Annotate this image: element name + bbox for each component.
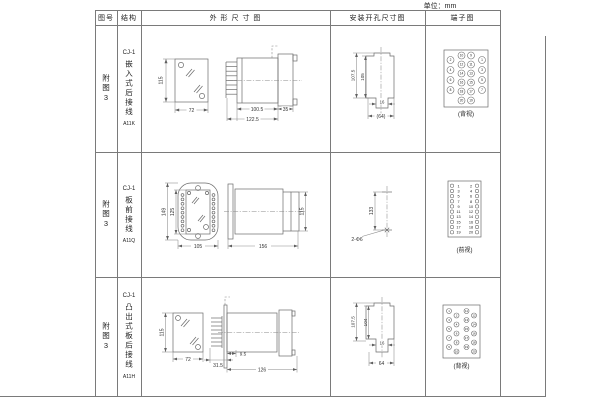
- svg-text:13: 13: [469, 72, 473, 76]
- structure-row2: CJ-1 板前接线 A11Q: [117, 152, 141, 277]
- dim-label: 126: [258, 368, 267, 374]
- svg-text:16: 16: [472, 332, 476, 336]
- dim-label: 149: [162, 208, 168, 217]
- dim-label: 105: [194, 244, 203, 250]
- header-outline: 外 形 尺 寸 图: [141, 10, 330, 25]
- svg-text:18: 18: [460, 90, 464, 94]
- dim-label: 9.5: [240, 352, 247, 357]
- dim-label: 105: [360, 73, 365, 81]
- code-label: A11Q: [123, 238, 135, 244]
- svg-text:16: 16: [469, 220, 473, 224]
- fig-no-row2: 附图3: [95, 152, 117, 277]
- svg-text:17: 17: [469, 90, 473, 94]
- mount-label: 板前接线: [124, 196, 135, 234]
- svg-text:4: 4: [450, 68, 452, 72]
- svg-text:12: 12: [460, 63, 464, 67]
- svg-text:14: 14: [472, 323, 476, 327]
- svg-text:15: 15: [465, 327, 469, 331]
- terminal-caption: (前视): [457, 246, 473, 254]
- svg-text:19: 19: [469, 99, 473, 103]
- svg-text:6: 6: [470, 195, 472, 199]
- svg-text:16: 16: [460, 81, 464, 85]
- front-dims: [162, 313, 203, 362]
- svg-text:11: 11: [465, 309, 468, 313]
- dim-label: 115: [300, 207, 306, 215]
- fig-no-row3: 附图3: [95, 277, 117, 396]
- side-view: [226, 54, 297, 106]
- datasheet-page: 单位：mm 图号 结构 外 形 尺 寸 图 安装开孔尺寸图 端子图 附图3 附图…: [0, 0, 600, 400]
- svg-text:17: 17: [465, 336, 469, 340]
- fig-no-row1: 附图3: [95, 25, 117, 152]
- svg-text:14: 14: [469, 215, 473, 219]
- dim-label: 107.5: [351, 69, 356, 81]
- code-label: A11H: [123, 374, 135, 380]
- svg-text:15: 15: [469, 81, 473, 85]
- header-fig-no: 图号: [95, 10, 117, 25]
- page-right-border: [545, 36, 546, 396]
- terminal-drawing-row2: 12 34 56 78 910 1112 1314 1516 1718 1920…: [425, 152, 500, 277]
- terminal-caption: (背视): [454, 362, 470, 370]
- svg-text:9: 9: [470, 54, 472, 58]
- svg-text:12: 12: [469, 210, 473, 214]
- dim-label: (64): [377, 114, 386, 120]
- svg-text:1: 1: [457, 184, 459, 188]
- mount-label: 凸出式板后接线: [124, 303, 135, 370]
- dim-label: 122.5: [246, 117, 259, 123]
- svg-text:13: 13: [465, 318, 469, 322]
- install-drawing-row3: 107.5 104 16 64: [330, 277, 425, 397]
- dim-label: 16: [380, 100, 385, 105]
- table-border: [500, 10, 501, 397]
- hook-mark: [225, 297, 230, 305]
- structure-row1: CJ-1 嵌入式后接线 A11K: [117, 25, 141, 152]
- svg-text:19: 19: [465, 345, 469, 349]
- front-view: [173, 313, 203, 352]
- install-dims: [353, 53, 395, 119]
- svg-text:4: 4: [470, 190, 472, 194]
- svg-text:18: 18: [469, 226, 473, 230]
- svg-text:13: 13: [456, 215, 460, 219]
- svg-text:11: 11: [469, 63, 473, 67]
- dim-label: 115: [160, 328, 166, 336]
- front-view: [175, 59, 208, 102]
- svg-text:1: 1: [481, 58, 483, 62]
- svg-text:20: 20: [472, 350, 476, 354]
- side-dims: [228, 192, 308, 249]
- svg-text:15: 15: [456, 220, 460, 224]
- svg-text:5: 5: [481, 78, 483, 82]
- svg-text:6: 6: [450, 78, 452, 82]
- dim-label: 72: [189, 108, 195, 114]
- svg-text:11: 11: [457, 210, 461, 214]
- dim-label: 133: [369, 207, 375, 216]
- hook-mark: [272, 46, 278, 58]
- install-dims: [353, 303, 395, 366]
- outline-drawing-row2: 149 125 105 156 115: [141, 152, 330, 277]
- svg-text:20: 20: [460, 99, 464, 103]
- svg-text:10: 10: [460, 54, 464, 58]
- dim-label: 35: [283, 107, 289, 113]
- dim-label: 31.5: [213, 363, 223, 369]
- svg-text:2: 2: [450, 58, 452, 62]
- mount-label: 嵌入式后接线: [124, 60, 135, 117]
- side-view: [211, 305, 295, 368]
- svg-text:20: 20: [469, 231, 473, 235]
- dim-label: 104: [363, 318, 368, 326]
- svg-text:19: 19: [456, 231, 460, 235]
- hole-callout: 2-Φ6: [351, 237, 362, 243]
- outline-drawing-row3: 115 72 31.5 9.5 126: [141, 277, 330, 397]
- header-install: 安装开孔尺寸图: [330, 10, 425, 25]
- install-drawing-row2: 133 2-Φ6: [330, 152, 425, 277]
- structure-row3: CJ-1 凸出式板后接线 A11H: [117, 277, 141, 396]
- svg-text:10: 10: [469, 205, 473, 209]
- model-label: CJ-1: [123, 186, 136, 192]
- svg-text:7: 7: [457, 200, 459, 204]
- dim-label: 64: [379, 361, 385, 367]
- front-view: [178, 183, 218, 240]
- svg-text:3: 3: [457, 190, 459, 194]
- header-structure: 结构: [117, 10, 141, 25]
- svg-text:18: 18: [472, 341, 476, 345]
- svg-text:9: 9: [457, 205, 459, 209]
- code-label: A11K: [123, 121, 135, 127]
- dim-label: 72: [185, 357, 191, 363]
- model-label: CJ-1: [123, 50, 136, 56]
- svg-text:14: 14: [460, 72, 464, 76]
- dim-label: 107.5: [351, 316, 356, 328]
- terminal-grid: 2 4 6 8 1 3 5 7 10 12 14 16 18 20 9 11 1…: [447, 52, 486, 104]
- svg-text:3: 3: [481, 68, 483, 72]
- terminal-drawing-row1: 2 4 6 8 1 3 5 7 10 12 14 16 18 20 9 11 1…: [425, 25, 500, 152]
- terminal-grid: 1 3 5 7 9 2 4 6 8 10 11 13 15 17 19 12 1…: [447, 309, 477, 355]
- header-terminal: 端子图: [425, 10, 500, 25]
- dim-label: 156: [259, 244, 268, 250]
- svg-text:8: 8: [470, 200, 472, 204]
- dim-label: 16: [380, 341, 385, 346]
- svg-text:12: 12: [472, 314, 476, 318]
- svg-text:17: 17: [456, 226, 460, 230]
- outline-drawing-row1: 115 72 100.5 35 122.5: [141, 25, 330, 152]
- svg-text:5: 5: [457, 195, 459, 199]
- model-label: CJ-1: [123, 293, 136, 299]
- svg-text:7: 7: [481, 88, 483, 92]
- terminal-drawing-row3: 1 3 5 7 9 2 4 6 8 10 11 13 15 17 19 12 1…: [425, 277, 500, 397]
- dim-label: 115: [159, 76, 165, 84]
- svg-text:10: 10: [455, 350, 459, 354]
- terminal-caption: (背视): [458, 110, 474, 118]
- svg-text:2: 2: [470, 184, 472, 188]
- front-dims: [163, 59, 208, 113]
- install-drawing-row1: 107.5 105 16 (64): [330, 25, 425, 152]
- dim-label: 100.5: [251, 107, 264, 113]
- svg-text:8: 8: [450, 88, 452, 92]
- dim-label: 125: [170, 208, 176, 217]
- terminal-grid: 12 34 56 78 910 1112 1314 1516 1718 1920: [450, 184, 478, 235]
